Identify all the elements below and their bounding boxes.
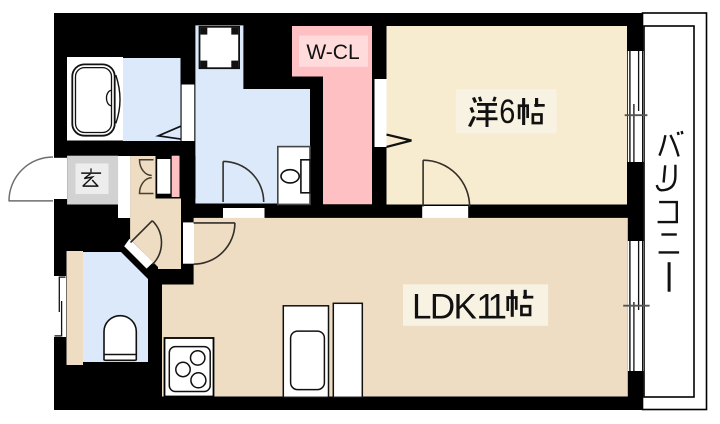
svg-text:1: 1 [488,287,507,326]
svg-text:W-CL: W-CL [306,41,359,64]
svg-text:6: 6 [499,92,515,131]
svg-text:LDK: LDK [412,287,477,326]
